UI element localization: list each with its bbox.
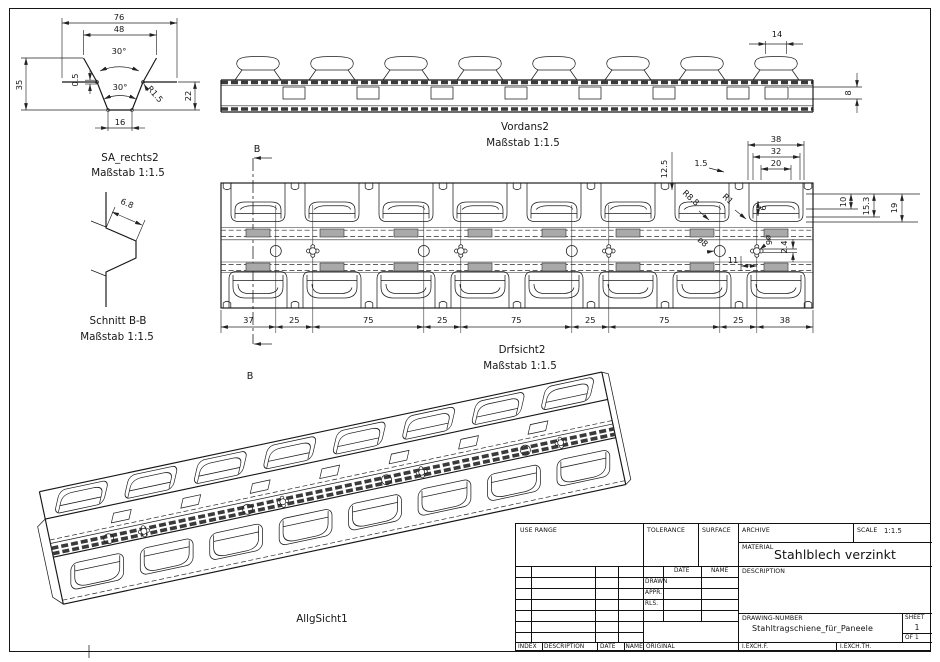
sheet-label: SHEET	[905, 615, 924, 621]
original-label: ORIGINAL	[646, 644, 675, 650]
scale-value: 1:1.5	[884, 527, 902, 535]
description-label: DESCRIPTION	[742, 568, 785, 575]
index-label: INDEX	[518, 644, 537, 650]
appr-label: APPR.	[645, 590, 662, 596]
date-header: DATE	[674, 568, 689, 574]
material-value: Stahlblech verzinkt	[738, 547, 932, 562]
drawn-label: DRAWN	[645, 579, 667, 585]
drawing-number-label: DRAWING-NUMBER	[742, 615, 803, 622]
rls-label: RLS.	[645, 601, 658, 607]
title-block: USE RANGE TOLERANCE SURFACE ARCHIVE SCAL…	[515, 523, 931, 651]
of-value: OF 1	[905, 635, 919, 641]
name-header: NAME	[711, 568, 728, 574]
scale-label: SCALE	[857, 527, 877, 534]
description2-label: DESCRIPTION	[544, 644, 584, 650]
archive-label: ARCHIVE	[742, 527, 770, 534]
surface-label: SURFACE	[702, 527, 731, 534]
iexchf-label: I.EXCH.F.	[742, 644, 768, 650]
name2-label: NAME	[626, 644, 643, 650]
tolerance-label: TOLERANCE	[647, 527, 685, 534]
drawing-number-value: Stahltragschiene_für_Paneele	[752, 624, 873, 633]
use-range-label: USE RANGE	[520, 527, 557, 534]
date2-label: DATE	[600, 644, 615, 650]
iexchth-label: I.EXCH.TH.	[840, 644, 872, 650]
sheet-value: 1	[902, 623, 932, 632]
